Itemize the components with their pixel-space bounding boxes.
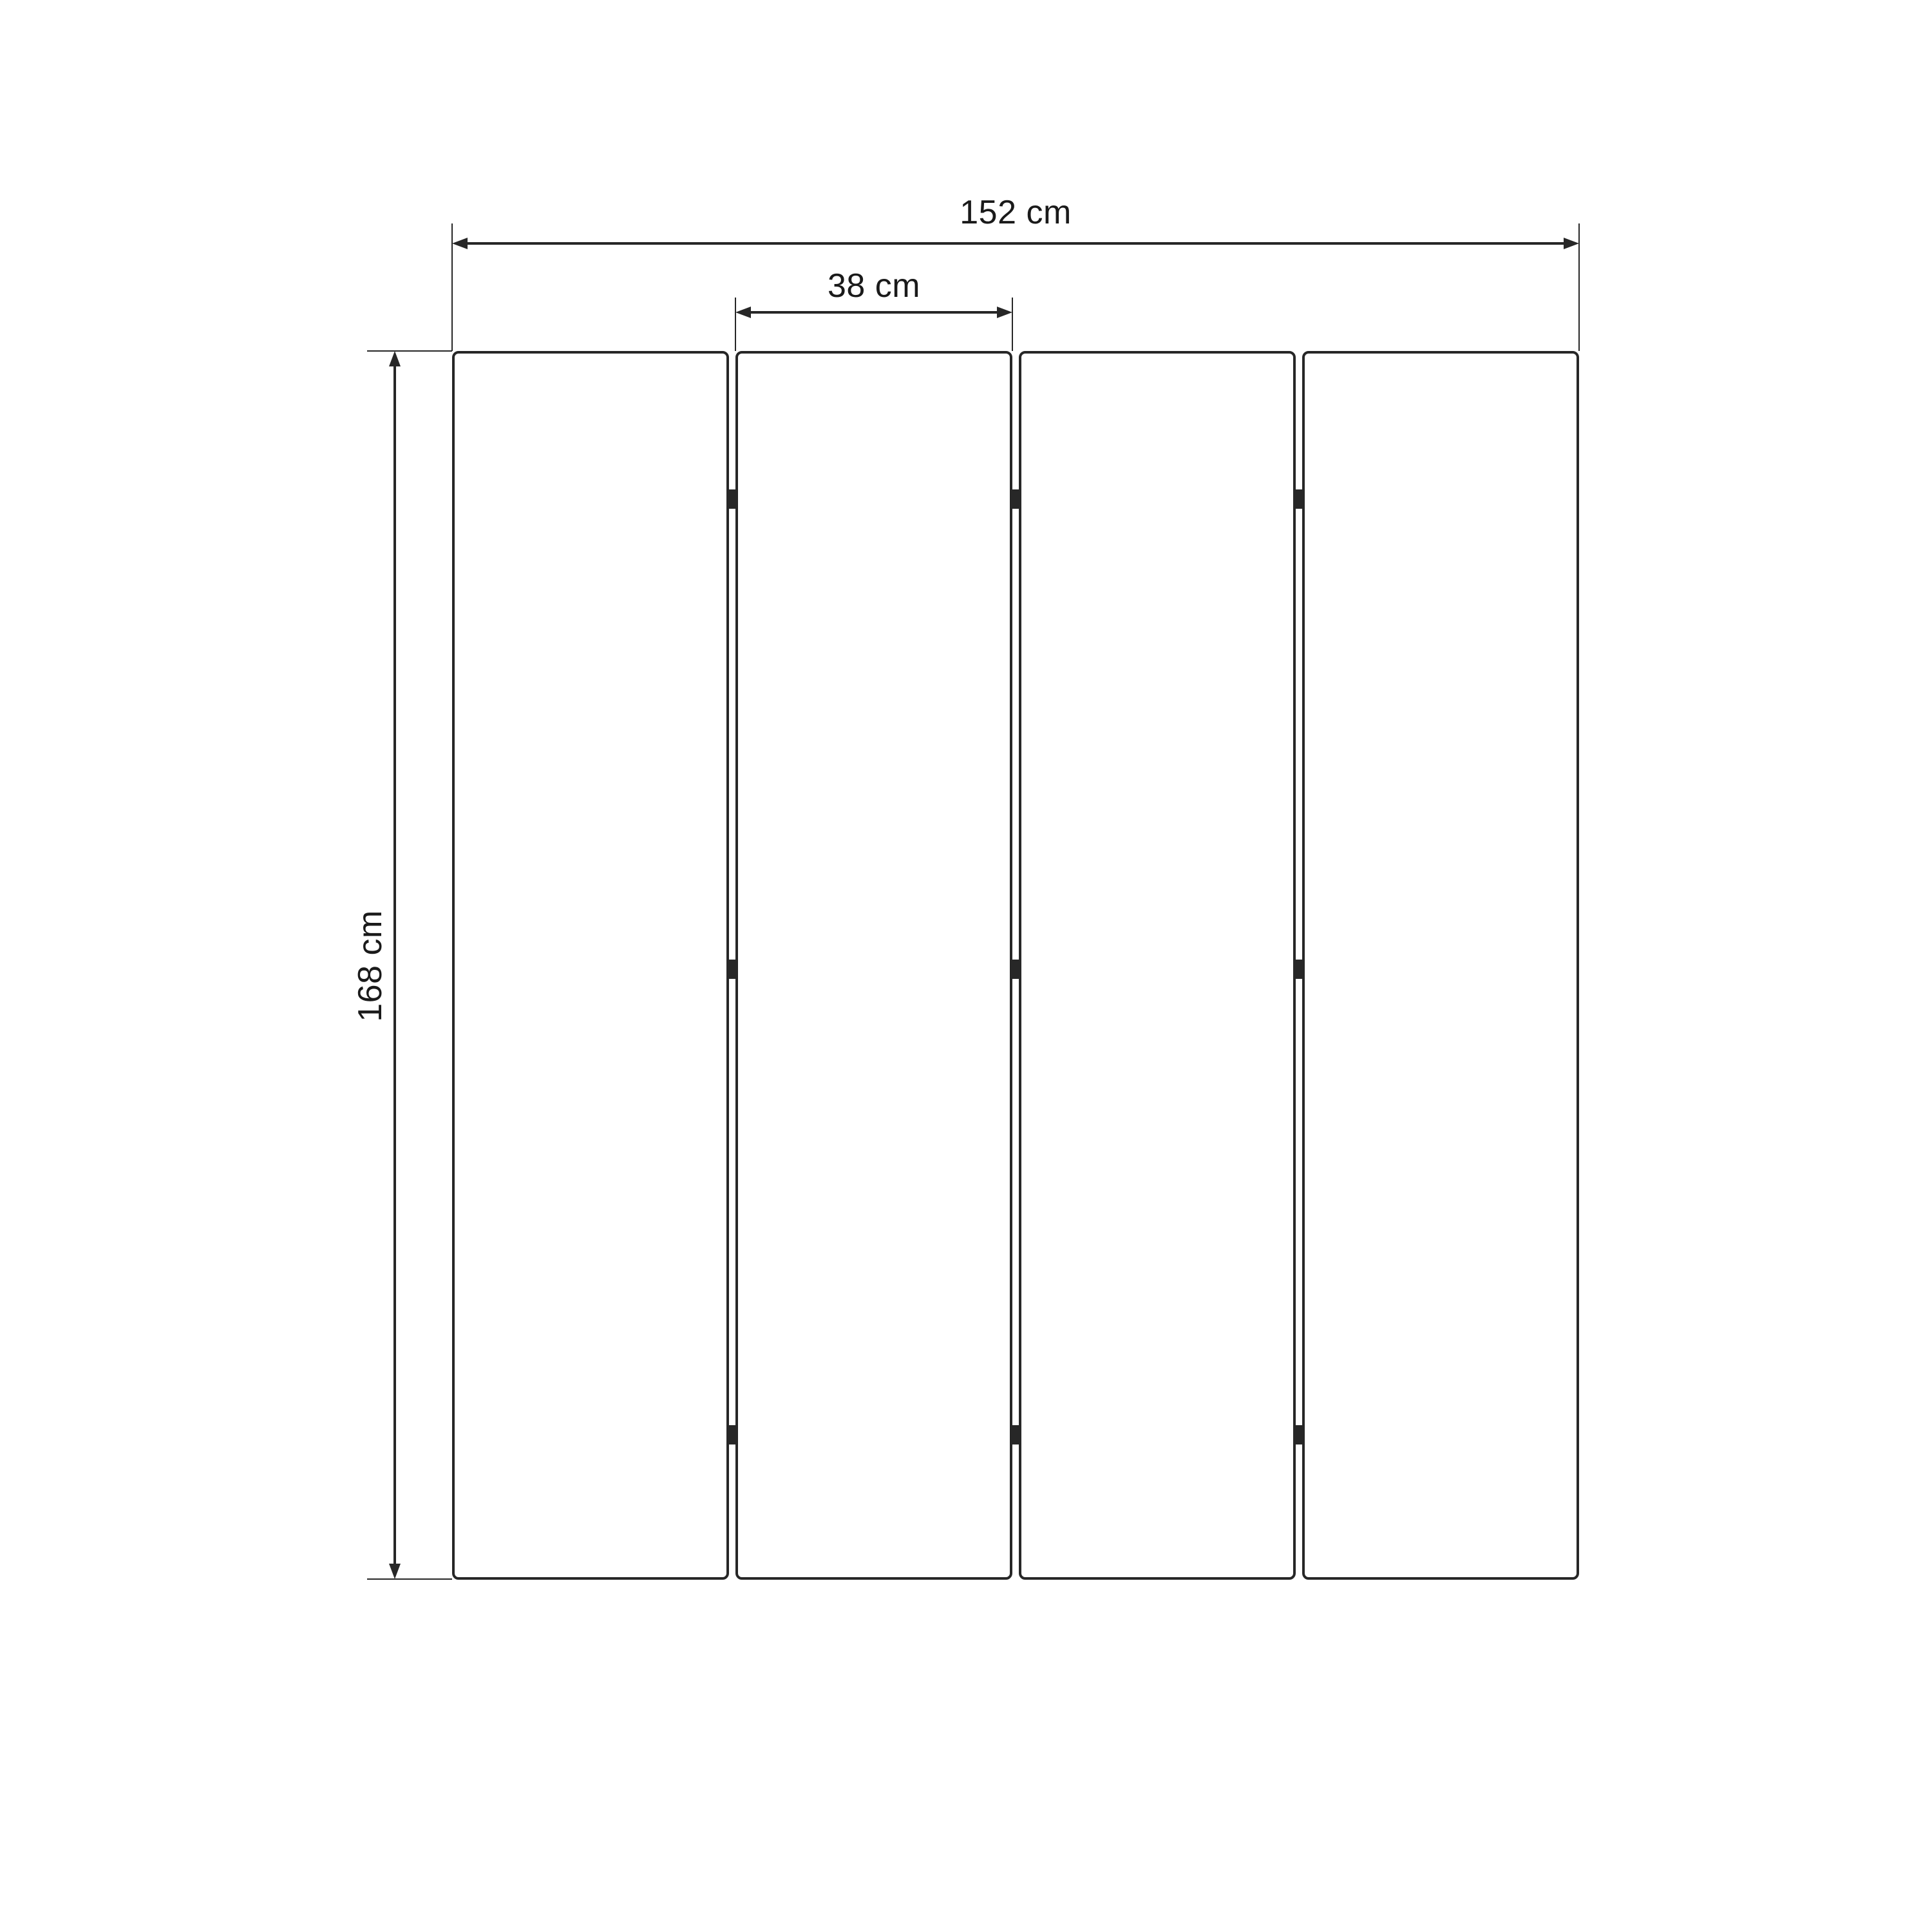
arrow-right-total-width [1564,238,1579,249]
dimension-diagram: 152 cm 38 cm 168 cm [0,0,1932,1932]
panel-3 [1019,351,1296,1580]
hinge-joint3-middle [1293,960,1305,979]
arrow-right-panel-width [997,307,1012,318]
panel-width-dimension-label: 38 cm [828,269,920,303]
arrow-top-height [389,351,401,366]
arrow-left-panel-width [735,307,751,318]
panel-4 [1302,351,1579,1580]
hinge-joint2-top [1010,489,1021,509]
hinge-joint2-bottom [1010,1425,1021,1444]
hinge-joint1-middle [726,960,738,979]
panel-1 [452,351,729,1580]
height-dimension-label: 168 cm [354,910,387,1022]
arrow-bottom-height [389,1564,401,1579]
arrow-left-total-width [452,238,468,249]
hinge-joint3-bottom [1293,1425,1305,1444]
hinge-joint3-top [1293,489,1305,509]
hinge-joint1-bottom [726,1425,738,1444]
hinge-joint1-top [726,489,738,509]
panel-2 [735,351,1012,1580]
total-width-dimension-label: 152 cm [960,196,1072,229]
hinge-joint2-middle [1010,960,1021,979]
